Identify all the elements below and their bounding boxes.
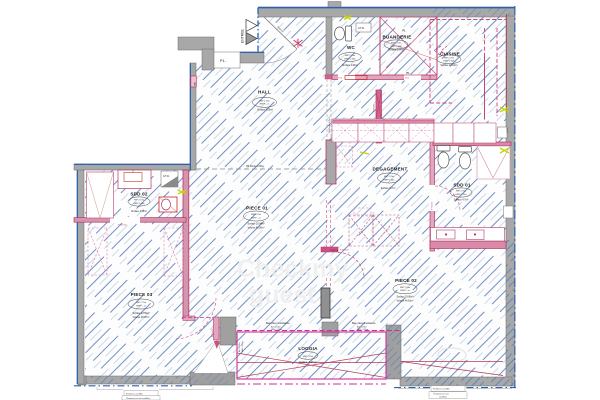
svg-text:guest: guest [249, 281, 316, 309]
svg-text:GT 01: GT 01 [358, 28, 365, 30]
svg-text:HSFP 2.30m: HSFP 2.30m [443, 61, 455, 63]
svg-text:GT 01: GT 01 [163, 176, 170, 178]
svg-text:HSP 2.70m: HSP 2.70m [134, 200, 145, 202]
svg-text:HSP 2.70m: HSP 2.70m [251, 214, 262, 216]
svg-text:HSFP 2.30m: HSFP 2.30m [133, 203, 145, 205]
svg-text:AII : 0.00m: AII : 0.00m [238, 342, 241, 352]
svg-text:P1...: P1... [220, 59, 227, 63]
svg-text:P.90x218: P.90x218 [212, 328, 214, 337]
svg-text:PIECE 03: PIECE 03 [131, 292, 153, 297]
svg-text:Surface 9.05m²: Surface 9.05m² [257, 108, 273, 111]
svg-text:Volume 46.61m³: Volume 46.61m³ [397, 300, 414, 303]
svg-text:Surface 1.94m²: Surface 1.94m² [342, 64, 358, 67]
svg-text:Surface 20.94m²: Surface 20.94m² [248, 223, 265, 226]
svg-text:LAS : 2.05m: LAS : 2.05m [271, 328, 282, 331]
svg-text:LAS : 2.05m: LAS : 2.05m [357, 328, 368, 331]
svg-text:Checkmy: Checkmy [237, 255, 348, 283]
svg-text:PIECE 02: PIECE 02 [395, 278, 417, 283]
svg-text:HSFP —m: HSFP —m [400, 290, 410, 292]
svg-text:Écoiseries et non soufflées: Écoiseries et non soufflées [127, 397, 151, 400]
svg-text:Surface 12.91m²: Surface 12.91m² [441, 64, 458, 67]
svg-text:LOGGIA: LOGGIA [298, 346, 318, 351]
svg-text:Surface 4.7m²: Surface 4.7m² [454, 199, 469, 202]
svg-text:HSP 2.70m: HSP 2.70m [303, 356, 314, 358]
svg-text:POTEAU: POTEAU [373, 103, 376, 112]
svg-text:HSFP 2.36m: HSFP 2.36m [383, 179, 395, 181]
svg-text:BUANDERIE: BUANDERIE [382, 35, 411, 40]
svg-text:HS Poutre 2.35m: HS Poutre 2.35m [328, 117, 331, 133]
svg-text:HSP 2.70m: HSP 2.70m [259, 100, 270, 102]
svg-text:HSFP —m: HSFP —m [136, 305, 146, 307]
svg-text:Fenêtres à soufflet: Fenêtres à soufflet [126, 392, 143, 395]
svg-text:ENTREE: ENTREE [241, 29, 245, 43]
svg-text:Surface 3.94m²: Surface 3.94m² [388, 49, 404, 52]
svg-text:Volume 40.30m³: Volume 40.30m³ [248, 227, 265, 230]
svg-text:Surface 19.06m²: Surface 19.06m² [397, 296, 414, 299]
svg-text:Écoiseries et non: Écoiseries et non [434, 393, 449, 396]
svg-text:GT 01: GT 01 [507, 127, 509, 133]
svg-text:Baie vitrée Coulissante: Baie vitrée Coulissante [352, 322, 376, 325]
svg-text:HSP 2.70m: HSP 2.70m [400, 287, 411, 289]
svg-text:HSFP —m: HSFP —m [251, 217, 261, 219]
svg-text:HALL: HALL [258, 90, 271, 95]
svg-text:WC: WC [347, 45, 356, 50]
svg-text:RAD: RAD [194, 81, 197, 86]
svg-text:Fenêtres à soufflet: Fenêtres à soufflet [433, 388, 450, 391]
svg-text:HSFP 2.30m: HSFP 2.30m [344, 58, 356, 60]
svg-text:HSP 2.70m: HSP 2.70m [444, 58, 455, 60]
svg-text:P 80x204: P 80x204 [330, 250, 339, 252]
svg-text:HSP 2.70m: HSP 2.70m [136, 302, 147, 304]
svg-text:P 80x204: P 80x204 [340, 250, 349, 252]
svg-text:HSP 2.70m: HSP 2.70m [456, 191, 467, 193]
svg-text:Surface : 5.15 m²: Surface : 5.15 m² [299, 361, 317, 364]
svg-text:Surface 6.7m²: Surface 6.7m² [381, 187, 396, 190]
svg-text:SDD 01: SDD 01 [453, 183, 471, 188]
svg-text:HS Poutre 2.35m: HS Poutre 2.35m [246, 165, 264, 168]
svg-text:Surface 3.65m²: Surface 3.65m² [131, 210, 147, 213]
svg-text:HSP 2.70m: HSP 2.70m [384, 176, 395, 178]
svg-text:Surface 13.59m²: Surface 13.59m² [133, 312, 150, 315]
svg-text:HSFP —m: HSFP —m [260, 104, 270, 106]
svg-text:P 75x204: P 75x204 [432, 201, 434, 210]
svg-text:HSP 2.70m: HSP 2.70m [391, 43, 402, 45]
svg-text:LAS : 2.05m: LAS : 2.05m [241, 341, 244, 352]
svg-text:Volume 38.97m³: Volume 38.97m³ [133, 316, 150, 319]
svg-text:PIECE 01: PIECE 01 [246, 206, 268, 211]
svg-text:P 73x204: P 73x204 [118, 225, 127, 227]
svg-text:CUISINE: CUISINE [440, 52, 460, 57]
svg-text:DEGAGEMENT: DEGAGEMENT [373, 167, 408, 172]
svg-text:SDD 02: SDD 02 [130, 192, 148, 197]
svg-text:HSFP 2.30m: HSFP 2.30m [390, 46, 402, 48]
svg-text:HSFP 2.30m: HSFP 2.30m [455, 194, 467, 196]
svg-text:soufflées: soufflées [439, 396, 447, 398]
svg-text:Baie vitrée Coulissante: Baie vitrée Coulissante [266, 322, 290, 325]
svg-text:HSP 2.70m: HSP 2.70m [345, 55, 356, 57]
